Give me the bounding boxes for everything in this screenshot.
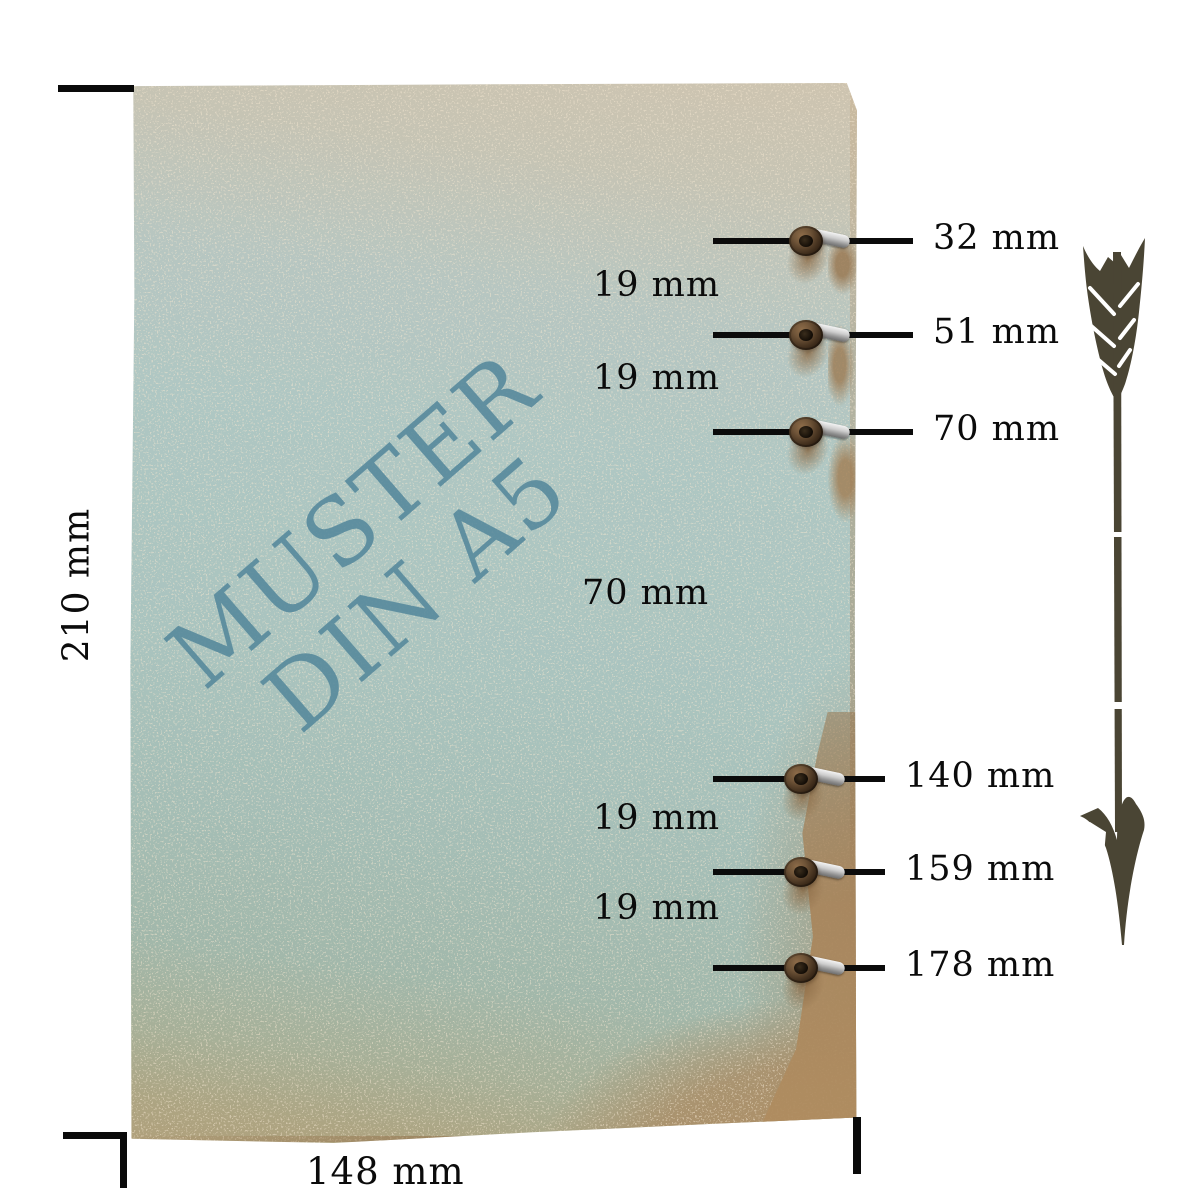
eyelet-ring [784, 857, 818, 887]
measure-line-left [713, 869, 791, 875]
eyelet-ring [789, 320, 823, 350]
height-tick-top [58, 85, 134, 92]
hole-distance-label: 32 mm [933, 218, 1060, 258]
measure-line-left [713, 332, 791, 338]
eyelet-ring [789, 417, 823, 447]
width-tick-left [120, 1132, 127, 1188]
measure-line-left [713, 776, 791, 782]
gap-label: 19 mm [593, 358, 720, 398]
hole-distance-label: 70 mm [933, 409, 1060, 449]
diagram-stage: MUSTER DIN A5 19 mm 19 mm 70 mm 19 mm 19… [0, 0, 1200, 1200]
gap-label: 19 mm [593, 798, 720, 838]
eyelet-ring [784, 953, 818, 983]
watermark: MUSTER DIN A5 [152, 337, 618, 777]
arrow-icon [1070, 232, 1184, 958]
torn-edge-upper [828, 228, 857, 533]
eyelet-ring [789, 226, 823, 256]
measure-line-left [713, 429, 791, 435]
height-label: 210 mm [57, 508, 98, 662]
width-tick-right [853, 1117, 861, 1174]
gap-label: 19 mm [593, 888, 720, 928]
hole-distance-label: 178 mm [905, 945, 1055, 985]
hole-distance-label: 51 mm [933, 312, 1060, 352]
height-tick-bottom [63, 1132, 127, 1139]
hole-distance-label: 140 mm [905, 756, 1055, 796]
gap-label: 19 mm [593, 265, 720, 305]
hole-distance-label: 159 mm [905, 849, 1055, 889]
gap-label: 70 mm [582, 573, 709, 613]
measure-line-left [713, 965, 791, 971]
width-label: 148 mm [306, 1150, 465, 1193]
eyelet-ring [784, 764, 818, 794]
measure-line-left [713, 238, 791, 244]
